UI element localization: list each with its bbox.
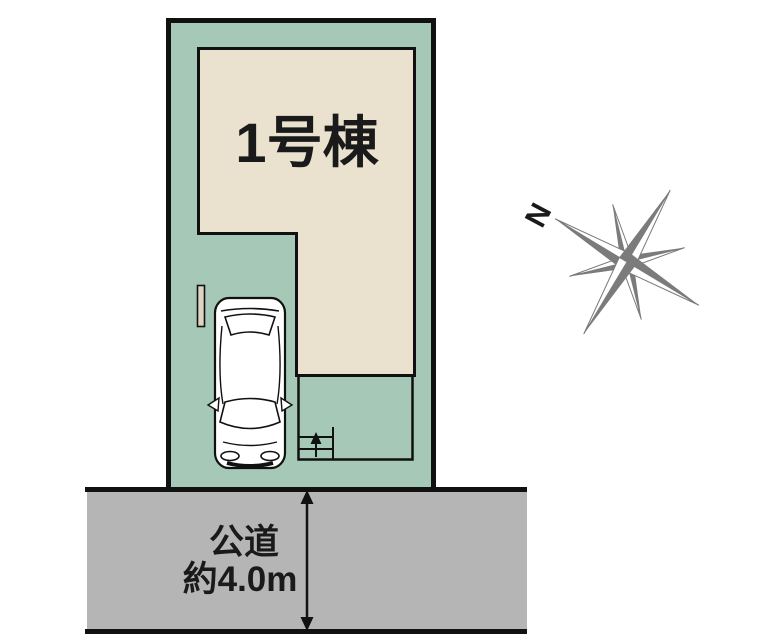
car-windshield [220, 399, 280, 429]
building-label: 1号棟 [235, 111, 379, 174]
gate-post [198, 286, 205, 327]
compass-star-icon [512, 147, 743, 378]
road-label-line2: 約4.0m [183, 560, 298, 599]
site-plan: 公道 約4.0m 1号棟 [0, 0, 757, 642]
car-rear-window [225, 314, 275, 335]
car-headlight-right [261, 452, 279, 461]
road-label-line1: 公道 [209, 523, 279, 562]
road: 公道 約4.0m [85, 487, 527, 634]
site-plan-canvas: 公道 約4.0m 1号棟 [0, 0, 757, 642]
compass-rose: N [512, 147, 743, 378]
car-headlight-left [221, 452, 239, 461]
north-letter: N [519, 198, 558, 233]
car-topview [208, 298, 292, 468]
road-edge-bottom [85, 629, 527, 634]
